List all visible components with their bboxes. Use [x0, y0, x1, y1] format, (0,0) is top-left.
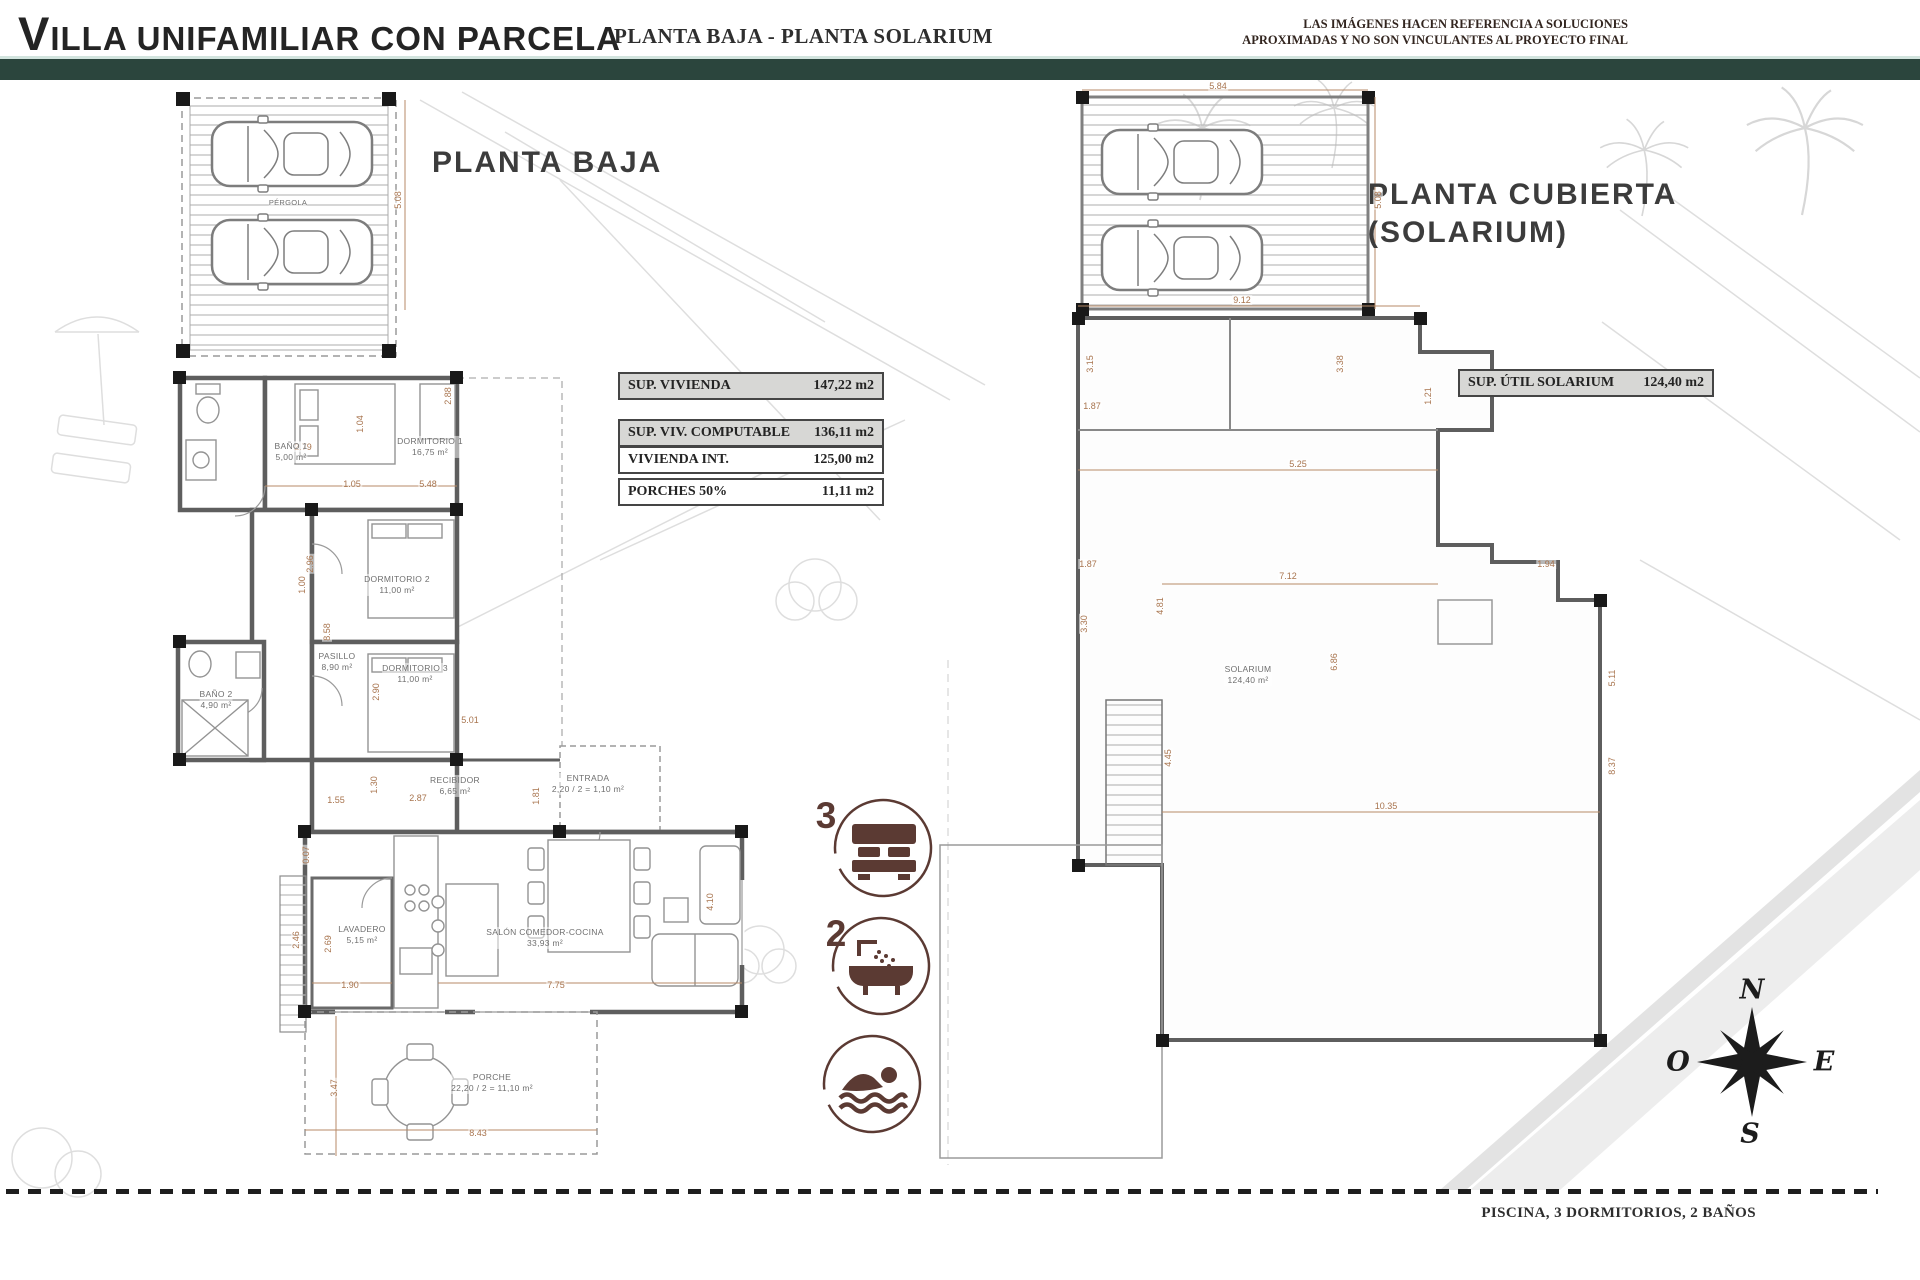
dimension-label: 8.37	[1607, 756, 1617, 776]
dimension-label: 4.81	[1155, 596, 1165, 616]
dimension-label: 1.30	[369, 775, 379, 795]
dimension-label: 1.21	[1423, 386, 1433, 406]
footer-summary: PISCINA, 3 DORMITORIOS, 2 BAÑOS	[1481, 1205, 1756, 1222]
dimension-label: 8.43	[468, 1128, 488, 1138]
room-label: DORMITORIO 311,00 m²	[382, 663, 448, 685]
room-name: ENTRADA	[567, 773, 610, 783]
dimension-label: 2.90	[371, 682, 381, 702]
dimension-label: 2.69	[323, 934, 333, 954]
bathtub-icon	[849, 940, 913, 995]
room-name: DORMITORIO 3	[382, 663, 448, 673]
room-area: 8,90 m²	[322, 662, 353, 672]
room-name: PORCHE	[473, 1072, 511, 1082]
dimension-label: 5.84	[1208, 81, 1228, 91]
room-name: SOLARIUM	[1225, 664, 1272, 674]
room-name: RECIBIDOR	[430, 775, 480, 785]
dimension-label: 1.05	[342, 479, 362, 489]
room-name: BAÑO 1	[275, 441, 308, 451]
disclaimer-line-2: APROXIMADAS Y NO SON VINCULANTES AL PROY…	[1242, 32, 1628, 48]
area-value: 11,11 m2	[822, 484, 874, 500]
dimension-label: 10.35	[1374, 801, 1399, 811]
planta-baja-drawing	[173, 92, 748, 1156]
area-label: SUP. VIVIENDA	[628, 378, 731, 394]
dimension-label: 5.11	[1607, 669, 1617, 688]
planta-baja-title: PLANTA BAJA	[432, 146, 662, 180]
planta-solarium-drawing	[940, 90, 1607, 1158]
dimension-label: 5.01	[460, 715, 480, 725]
compass-west: O	[1666, 1047, 1690, 1078]
dimension-label: 1.87	[1082, 401, 1102, 411]
room-area: 5,00 m²	[276, 452, 307, 462]
room-name: DORMITORIO 1	[397, 436, 463, 446]
room-name: PÉRGOLA	[269, 198, 307, 207]
area-value: 136,11 m2	[814, 425, 874, 441]
room-label: BAÑO 24,90 m²	[200, 689, 233, 711]
dimension-label: 3.15	[1085, 354, 1095, 374]
room-area: 124,40 m²	[1228, 675, 1269, 685]
room-name: PASILLO	[319, 651, 356, 661]
area-value: 125,00 m2	[813, 452, 874, 468]
room-area: 2,20 / 2 = 1,10 m²	[552, 784, 624, 794]
area-value: 124,40 m2	[1643, 375, 1704, 391]
room-label: PORCHE22,20 / 2 = 11,10 m²	[451, 1072, 533, 1094]
dimension-label: 5.08	[1373, 190, 1383, 210]
room-label: PASILLO8,90 m²	[319, 651, 356, 673]
area-label: PORCHES 50%	[628, 484, 727, 500]
room-area: 6,65 m²	[440, 786, 471, 796]
dimension-label: 7.75	[546, 980, 566, 990]
dimension-label: 4.45	[1163, 748, 1173, 768]
room-label: BAÑO 15,00 m²	[275, 441, 308, 463]
room-label: PÉRGOLA	[269, 198, 307, 208]
dimension-label: 2.87	[408, 793, 428, 803]
room-name: BAÑO 2	[200, 689, 233, 699]
dimension-label: 9.12	[1232, 295, 1252, 305]
dimension-label: 6.86	[1329, 652, 1339, 672]
dimension-label: 2.96	[305, 554, 315, 574]
room-label: SOLARIUM124,40 m²	[1225, 664, 1272, 686]
room-area: 4,90 m²	[201, 700, 232, 710]
dimension-label: 0.07	[301, 845, 311, 865]
room-name: SALÓN COMEDOR-COCINA	[486, 927, 603, 937]
dimension-label: 1.87	[1078, 559, 1098, 569]
room-label: DORMITORIO 116,75 m²	[397, 436, 463, 458]
area-label: SUP. ÚTIL SOLARIUM	[1468, 375, 1614, 391]
footer-dashed-rule	[6, 1189, 1878, 1194]
area-table-row: PORCHES 50% 11,11 m2	[618, 478, 884, 506]
dimension-label: 4.10	[705, 892, 715, 912]
room-label: RECIBIDOR6,65 m²	[430, 775, 480, 797]
swimmer-icon	[840, 1067, 906, 1112]
area-label: VIVIENDA INT.	[628, 452, 729, 468]
dimension-label: 2.88	[443, 386, 453, 406]
dimension-label: 5.48	[418, 479, 438, 489]
room-label: DORMITORIO 211,00 m²	[364, 574, 430, 596]
compass-east: E	[1814, 1047, 1835, 1078]
dimension-label: 3.38	[1335, 354, 1345, 374]
dimension-label: 2.46	[291, 930, 301, 950]
planta-solarium-title-line1: PLANTA CUBIERTA	[1368, 178, 1677, 212]
dimension-label: 5.25	[1288, 459, 1308, 469]
area-label: SUP. VIV. COMPUTABLE	[628, 425, 790, 441]
area-table-row: SUP. VIV. COMPUTABLE 136,11 m2	[618, 419, 884, 447]
room-area: 11,00 m²	[397, 674, 432, 684]
planta-solarium-title-line2: (SOLARIUM)	[1368, 216, 1568, 250]
dimension-label: 7.12	[1278, 571, 1298, 581]
dimension-label: 1.94	[1536, 559, 1556, 569]
header-accent-bar	[0, 56, 1920, 80]
room-area: 16,75 m²	[412, 447, 448, 457]
compass-south: S	[1740, 1119, 1760, 1150]
room-label: SALÓN COMEDOR-COCINA33,93 m²	[486, 927, 603, 949]
bathroom-count: 2	[826, 913, 847, 955]
plan-sheet-page: { "header": { "title": "VILLA UNIFAMILIA…	[0, 0, 1920, 1280]
room-area: 11,00 m²	[379, 585, 414, 595]
room-name: DORMITORIO 2	[364, 574, 430, 584]
room-area: 22,20 / 2 = 11,10 m²	[451, 1083, 533, 1093]
solarium-area-box: SUP. ÚTIL SOLARIUM 124,40 m2	[1458, 369, 1714, 397]
area-table-row: VIVIENDA INT. 125,00 m2	[618, 446, 884, 474]
feature-icons	[808, 784, 947, 1148]
dimension-label: 8.58	[322, 622, 332, 642]
disclaimer-line-1: LAS IMÁGENES HACEN REFERENCIA A SOLUCION…	[1242, 16, 1628, 32]
room-name: LAVADERO	[338, 924, 385, 934]
dimension-label: 1.00	[297, 575, 307, 595]
room-area: 33,93 m²	[527, 938, 563, 948]
dimension-label: 5.08	[393, 190, 403, 210]
dimension-label: 1.55	[326, 795, 346, 805]
dimension-label: 3.30	[1079, 614, 1089, 634]
bed-icon	[852, 824, 916, 880]
area-value: 147,22 m2	[813, 378, 874, 394]
room-area: 5,15 m²	[347, 935, 378, 945]
dimension-label: 1.04	[355, 414, 365, 434]
page-title: VILLA UNIFAMILIAR CON PARCELA	[18, 6, 621, 61]
room-label: LAVADERO5,15 m²	[338, 924, 385, 946]
dimension-label: 3.47	[329, 1078, 339, 1098]
dimension-label: 1.90	[340, 980, 360, 990]
dimension-label: 1.81	[531, 786, 541, 806]
disclaimer-text: LAS IMÁGENES HACEN REFERENCIA A SOLUCION…	[1242, 16, 1628, 48]
compass-north: N	[1740, 975, 1765, 1006]
area-table-row: SUP. VIVIENDA 147,22 m2	[618, 372, 884, 400]
page-subtitle: PLANTA BAJA - PLANTA SOLARIUM	[614, 24, 993, 49]
room-label: ENTRADA2,20 / 2 = 1,10 m²	[552, 773, 624, 795]
bedroom-count: 3	[816, 795, 837, 837]
